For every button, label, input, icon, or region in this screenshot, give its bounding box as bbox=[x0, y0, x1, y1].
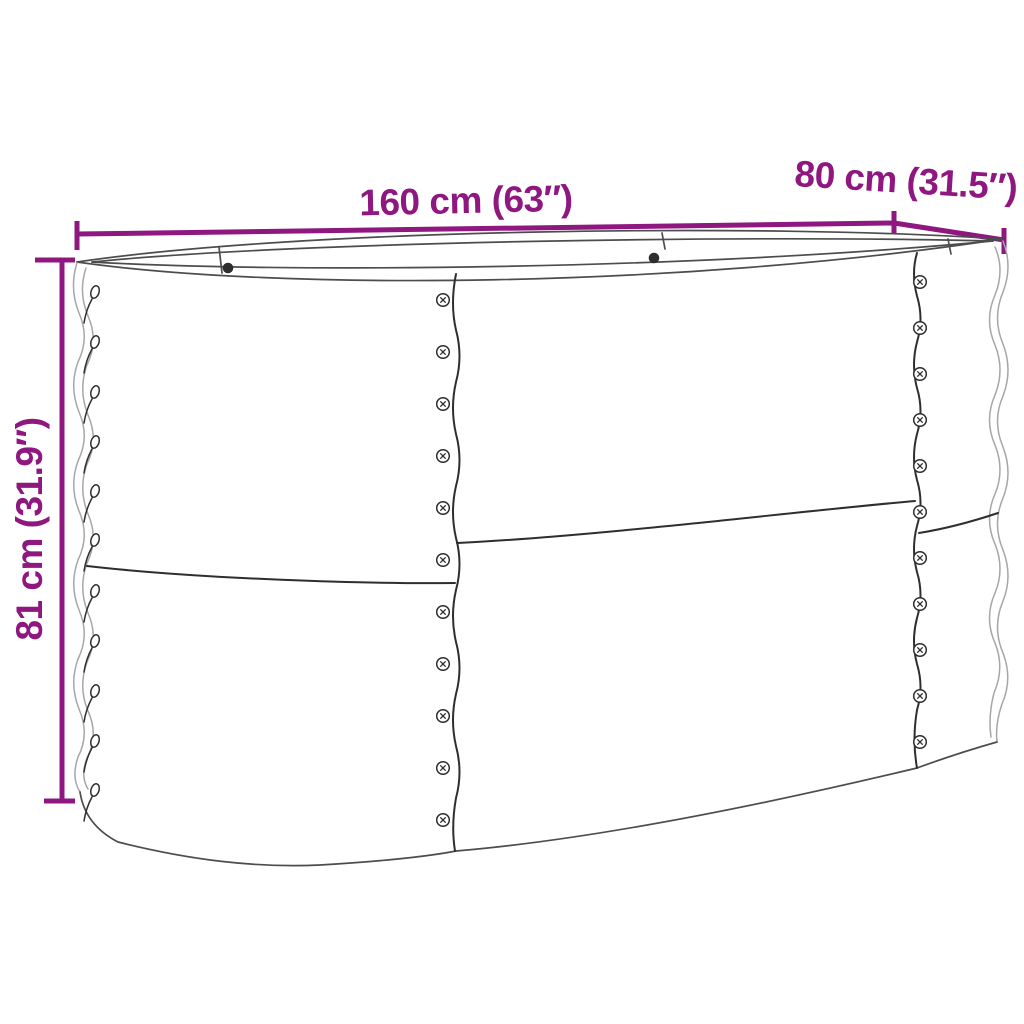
screw-icon bbox=[914, 322, 927, 335]
screw-icon bbox=[437, 502, 450, 515]
rivet-icon bbox=[84, 684, 101, 722]
screw-icon bbox=[914, 598, 927, 611]
rivet-icon bbox=[84, 584, 101, 622]
screw-icon bbox=[437, 814, 450, 827]
dimension-label-height: 81 cm (31.9″) bbox=[8, 379, 52, 679]
screw-icon bbox=[437, 658, 450, 671]
screw-icon bbox=[914, 414, 927, 427]
screw-icon bbox=[437, 762, 450, 775]
right-corrugated-edge bbox=[990, 241, 1009, 742]
product-dimension-image: 160 cm (63″) 80 cm (31.5″) 81 cm (31.9″) bbox=[0, 0, 1024, 1024]
dimension-label-length: 160 cm (63″) bbox=[316, 176, 617, 227]
planter-top-rim bbox=[77, 230, 1002, 280]
screw-icon bbox=[914, 736, 927, 749]
screw-icon bbox=[914, 690, 927, 703]
screw-icon bbox=[914, 460, 927, 473]
rivet-icon bbox=[84, 385, 101, 423]
screw-icon bbox=[914, 506, 927, 519]
screw-icon bbox=[437, 346, 450, 359]
screw-icon bbox=[914, 276, 927, 289]
rivet-icon bbox=[84, 734, 101, 772]
screw-icon bbox=[437, 294, 450, 307]
screw-icon bbox=[437, 606, 450, 619]
horizontal-panel-seams bbox=[87, 501, 998, 583]
rim-screw-icon bbox=[649, 253, 660, 264]
rivet-icon bbox=[84, 634, 101, 672]
planter-line-drawing bbox=[0, 0, 1024, 1024]
screw-icon bbox=[437, 710, 450, 723]
screw-icon bbox=[437, 554, 450, 567]
screw-icon bbox=[914, 644, 927, 657]
screw-icon bbox=[437, 398, 450, 411]
screw-icon bbox=[914, 552, 927, 565]
rivet-icon bbox=[84, 484, 101, 522]
rivet-icon bbox=[84, 285, 101, 323]
rim-screw-icon bbox=[223, 263, 234, 274]
rivet-icon bbox=[84, 783, 101, 821]
bottom-edge bbox=[80, 742, 997, 866]
left-seam-screw-icons bbox=[437, 294, 450, 827]
left-panel-seam bbox=[453, 274, 460, 851]
rim-seam-tick bbox=[219, 247, 222, 273]
screw-icon bbox=[914, 368, 927, 381]
screw-icon bbox=[437, 450, 450, 463]
rim-seam-tick bbox=[662, 233, 665, 249]
